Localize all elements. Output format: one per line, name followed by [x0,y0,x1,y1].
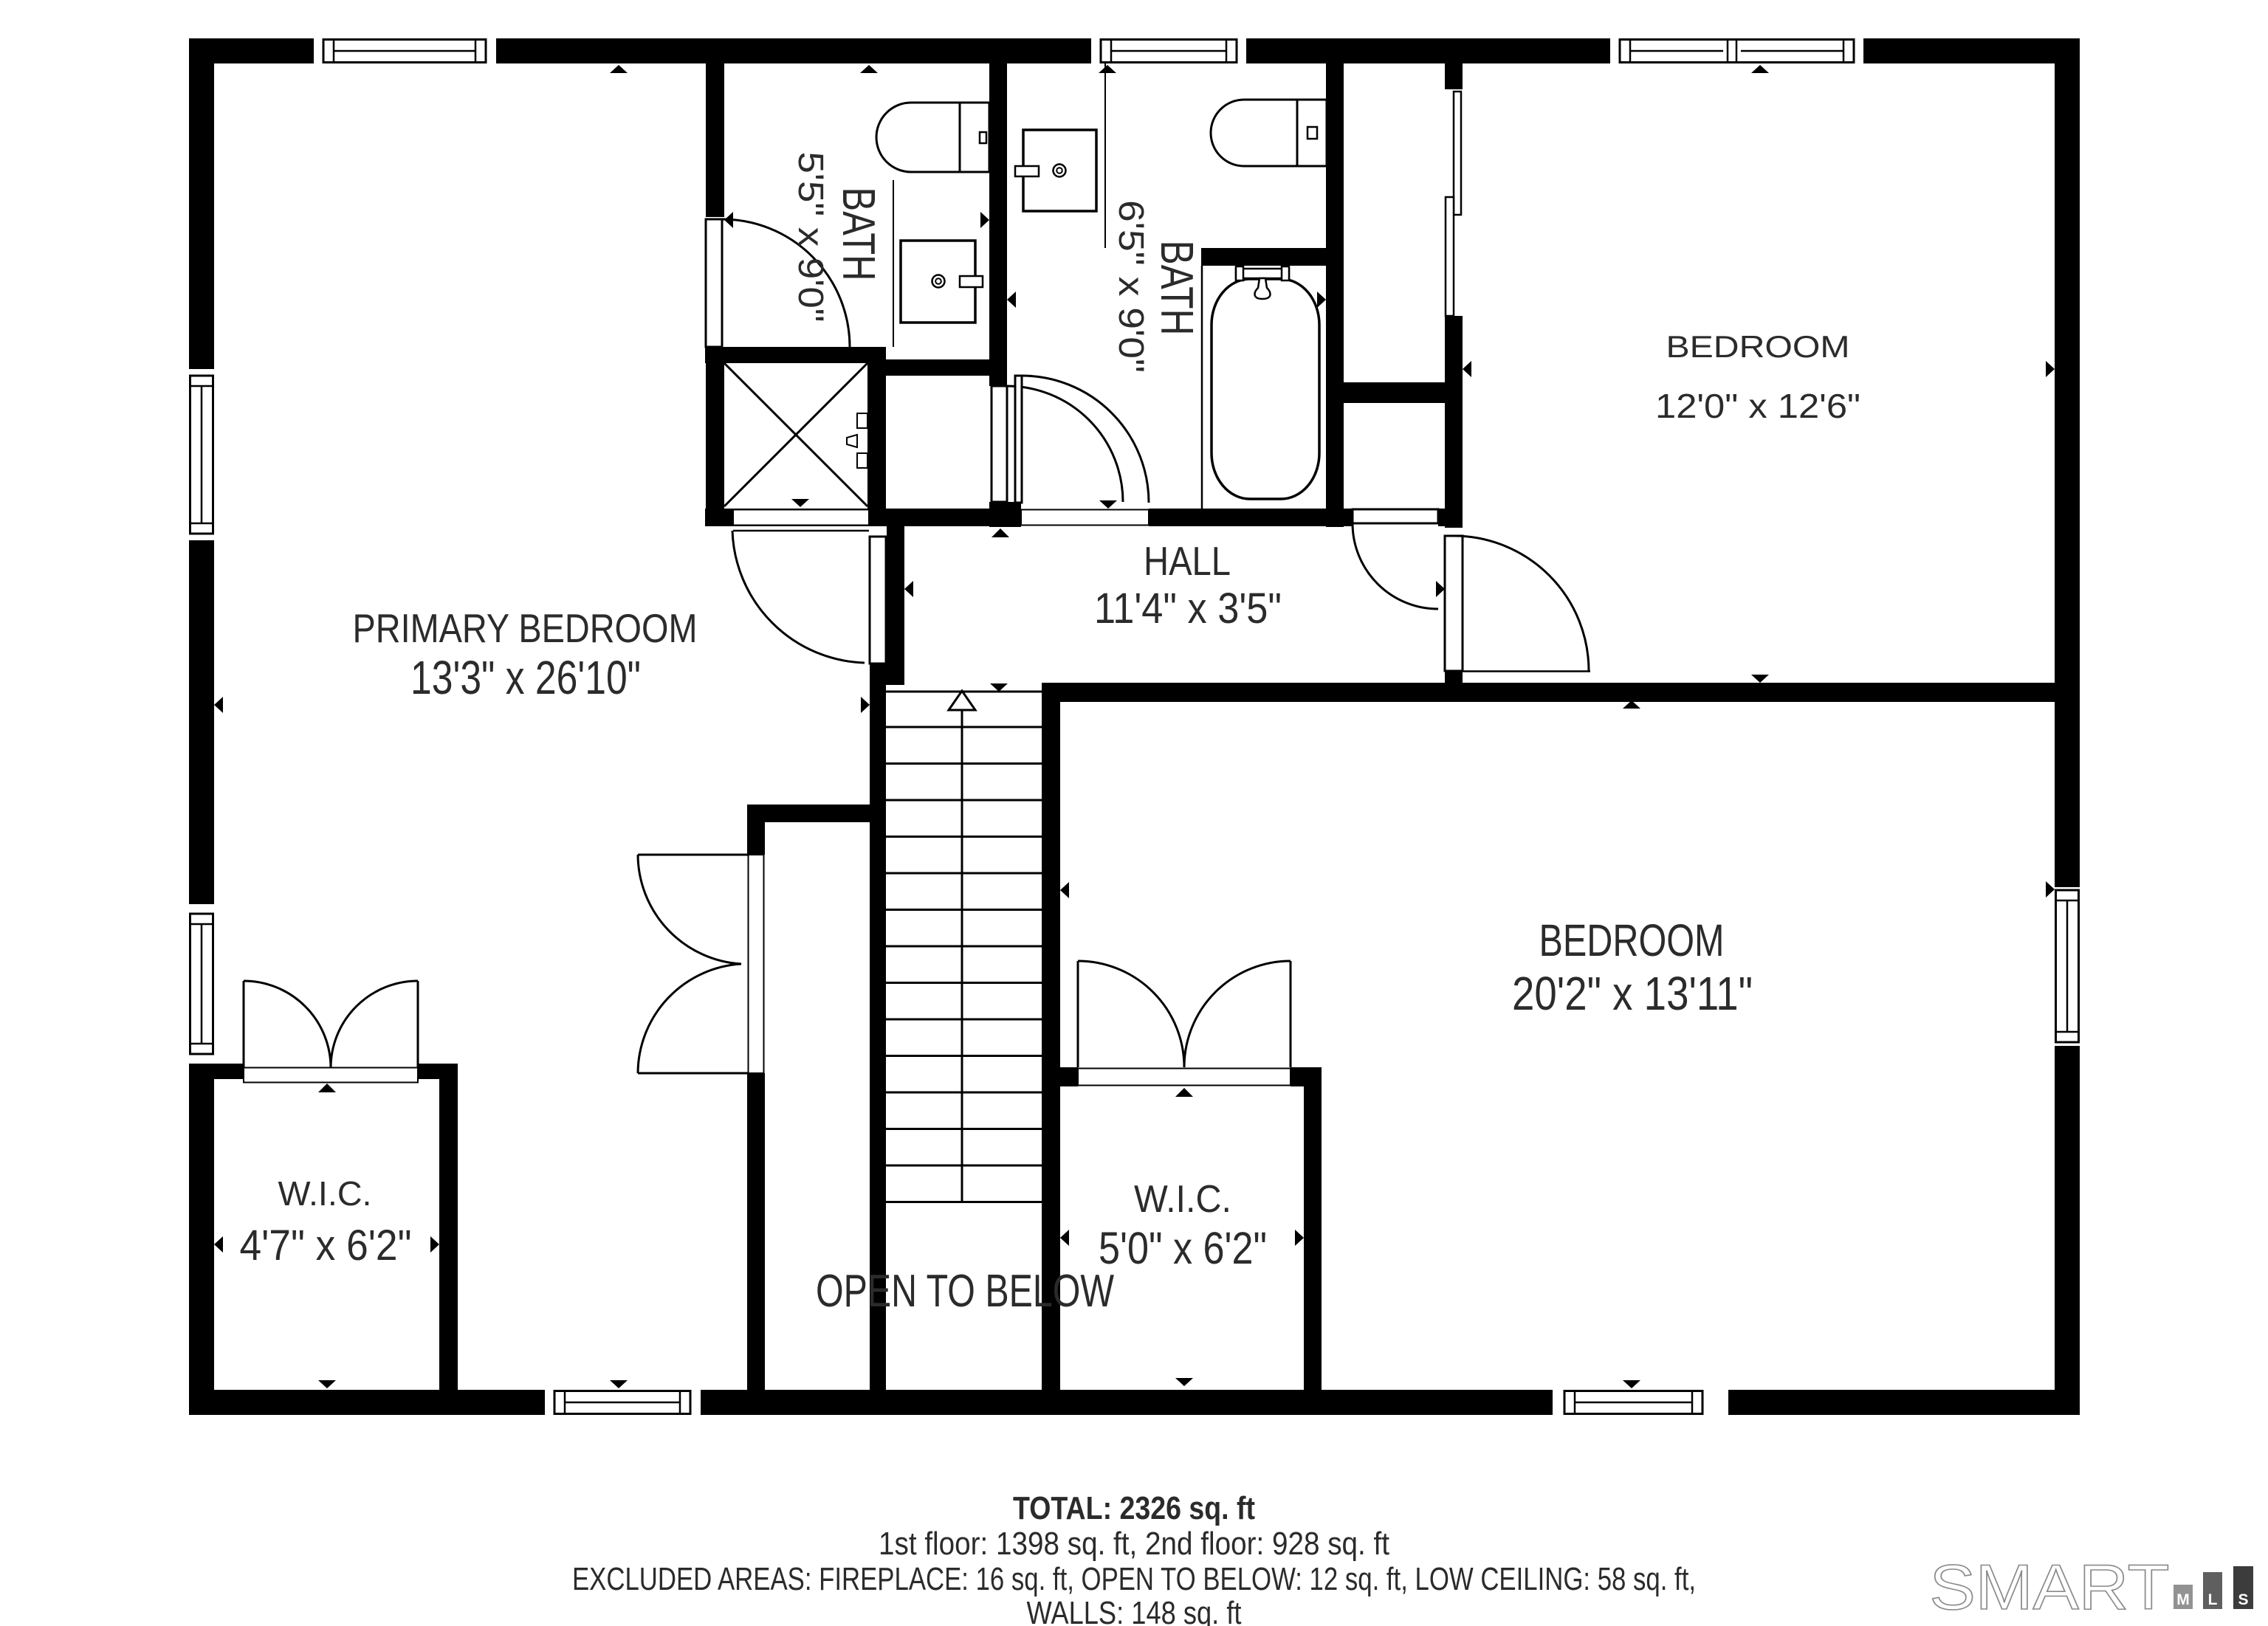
svg-text:WALLS: 148 sq. ft: WALLS: 148 sq. ft [1027,1595,1242,1626]
svg-text:W.I.C.: W.I.C. [278,1174,372,1213]
svg-text:L: L [2208,1591,2218,1608]
svg-text:EXCLUDED AREAS: FIREPLACE: 16: EXCLUDED AREAS: FIREPLACE: 16 sq. ft, OP… [572,1561,1696,1597]
svg-text:BATH: BATH [833,187,884,281]
svg-text:TOTAL: 2326 sq. ft: TOTAL: 2326 sq. ft [1013,1490,1255,1526]
svg-text:12'0" x 12'6": 12'0" x 12'6" [1655,387,1860,425]
svg-text:S: S [2238,1591,2248,1608]
svg-text:6'5" x 9'0": 6'5" x 9'0" [1111,200,1150,373]
svg-text:1st floor: 1398 sq. ft, 2nd fl: 1st floor: 1398 sq. ft, 2nd floor: 928 s… [879,1526,1389,1562]
svg-text:SMART: SMART [1930,1552,2170,1623]
svg-text:BATH: BATH [1151,241,1202,336]
svg-text:13'3" x 26'10": 13'3" x 26'10" [410,651,641,704]
svg-text:W.I.C.: W.I.C. [1134,1178,1231,1221]
svg-text:4'7" x 6'2": 4'7" x 6'2" [240,1222,412,1270]
svg-text:20'2" x 13'11": 20'2" x 13'11" [1512,967,1753,1020]
svg-text:PRIMARY BEDROOM: PRIMARY BEDROOM [353,605,698,651]
svg-text:11'4" x 3'5": 11'4" x 3'5" [1094,585,1282,633]
svg-text:OPEN TO BELOW: OPEN TO BELOW [816,1266,1114,1317]
svg-text:M: M [2176,1591,2190,1608]
svg-text:BEDROOM: BEDROOM [1666,329,1850,364]
svg-text:HALL: HALL [1144,538,1231,584]
svg-text:BEDROOM: BEDROOM [1539,915,1725,965]
svg-text:5'0" x 6'2": 5'0" x 6'2" [1099,1223,1267,1273]
svg-text:5'5" x 9'0": 5'5" x 9'0" [791,152,830,323]
